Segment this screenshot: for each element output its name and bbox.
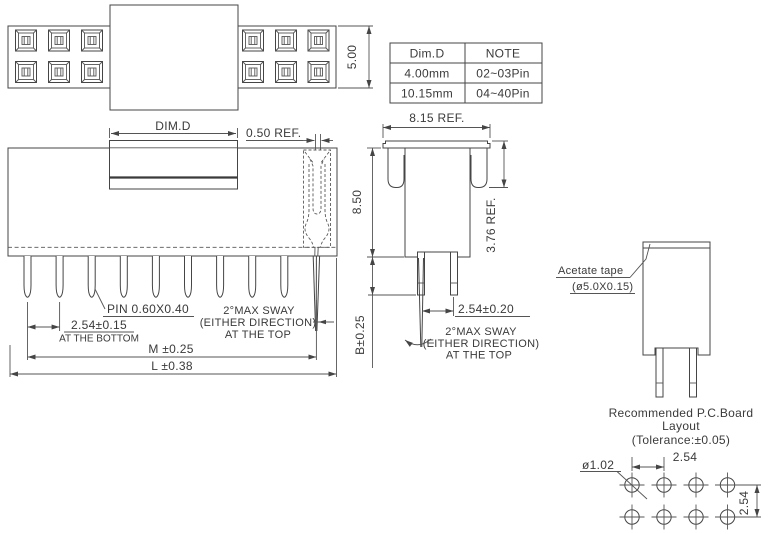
table-cell-dim-1: 4.00mm xyxy=(404,67,449,81)
front-sway-note-line3: AT THE TOP xyxy=(225,329,291,341)
pin-count-table: Dim.D NOTE 4.00mm 02~03Pin 10.15mm 04~40… xyxy=(390,43,542,103)
hole-diameter-dim: ø1.02 xyxy=(582,458,614,472)
side-sway-note-line1: 2°MAX SWAY xyxy=(445,326,517,338)
hole-pitch-h-dim: 2.54 xyxy=(673,450,698,464)
side-width-dim: 8.15 REF. xyxy=(409,111,464,125)
acetate-tape-view: Acetate tape (ø5.0X0.15) xyxy=(556,242,710,397)
bottom-pitch-note: AT THE BOTTOM xyxy=(59,334,139,345)
table-cell-note-1: 02~03Pin xyxy=(476,67,529,81)
pcb-title-line2: Layout xyxy=(662,419,700,433)
pin-length-dim: B±0.25 xyxy=(353,315,367,355)
slot-ref-dim: 0.50 REF. xyxy=(246,126,301,140)
pin-size-label: PIN 0.60X0.40 xyxy=(107,302,189,316)
pcb-title-line1: Recommended P.C.Board xyxy=(609,406,754,420)
front-view: DIM.D 0.50 REF. PIN 0.60X0.40 xyxy=(8,119,337,377)
side-sway-note-line3: AT THE TOP xyxy=(446,350,512,362)
pcb-title-line3: (Tolerance:±0.05) xyxy=(632,433,730,447)
top-view: 5.00 xyxy=(8,5,373,110)
m-dim: M ±0.25 xyxy=(148,342,193,356)
acetate-tape-size: (ø5.0X0.15) xyxy=(572,281,633,293)
table-header-note: NOTE xyxy=(486,47,521,61)
table-cell-dim-2: 10.15mm xyxy=(401,87,453,101)
side-pitch-dim: 2.54±0.20 xyxy=(458,302,514,316)
side-height-dim: 8.50 xyxy=(350,190,364,215)
acetate-tape-label: Acetate tape xyxy=(558,265,623,277)
drawing-svg: 5.00 Dim.D NOTE 4.00mm 02~03Pin 10.15mm … xyxy=(0,0,768,534)
connector-datasheet-drawing: 5.00 Dim.D NOTE 4.00mm 02~03Pin 10.15mm … xyxy=(0,0,768,534)
top-height-dim: 5.00 xyxy=(345,45,359,70)
top-view-center-block xyxy=(110,5,238,110)
bottom-pitch-dim: 2.54±0.15 xyxy=(71,318,127,332)
side-view: 8.15 REF. 8.50 B±0.25 3.76 REF. 2.54±0.2… xyxy=(350,111,539,368)
table-header-dim-d: Dim.D xyxy=(410,47,445,61)
l-dim: L ±0.38 xyxy=(151,359,193,373)
table-cell-note-2: 04~40Pin xyxy=(476,87,529,101)
side-flange-dim: 3.76 REF. xyxy=(484,197,498,252)
front-sway-note-line2: (EITHER DIRECTION) xyxy=(200,317,317,329)
side-sway-note-line2: (EITHER DIRECTION) xyxy=(423,338,540,350)
pcb-layout: Recommended P.C.Board Layout (Tolerance:… xyxy=(580,406,761,530)
front-sway-note-line1: 2°MAX SWAY xyxy=(223,305,295,317)
hole-pitch-v-dim: 2.54 xyxy=(737,491,751,516)
dim-d-label: DIM.D xyxy=(155,119,191,133)
